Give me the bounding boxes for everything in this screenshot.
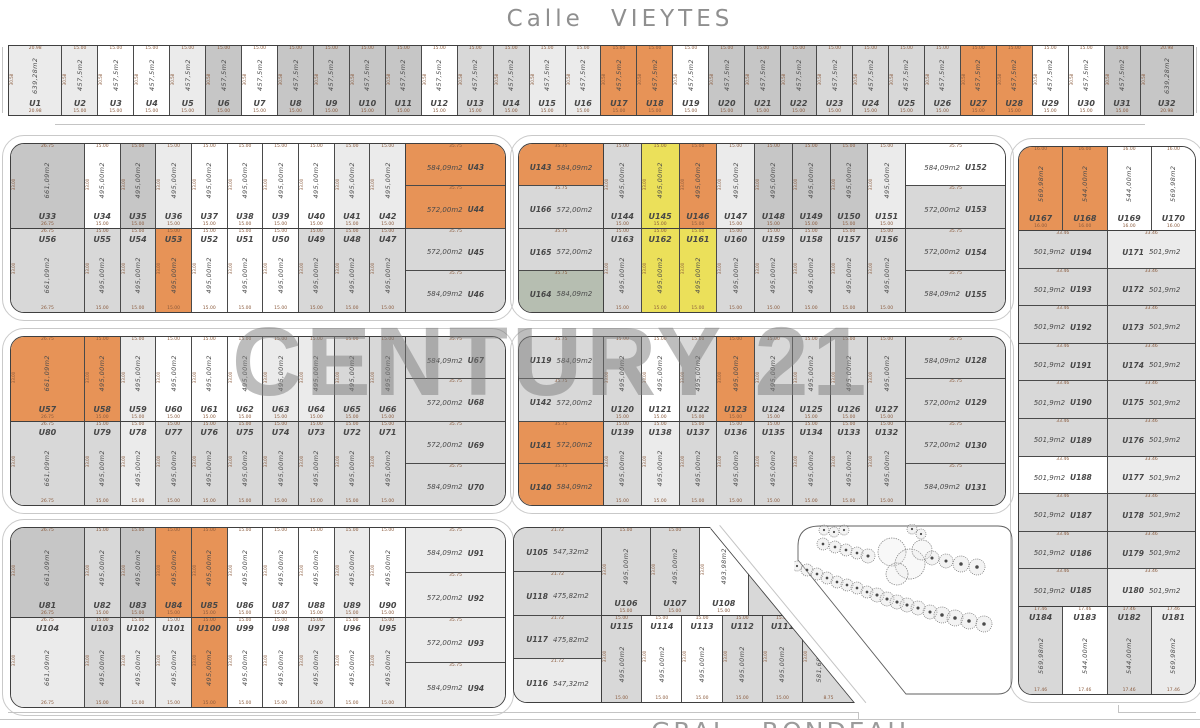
tree-icon [839, 525, 849, 535]
lot-dim-bottom: 16.00 [1123, 224, 1136, 230]
lot-area: 501,9m2 [1034, 248, 1065, 256]
lot-label: 572,00m2U92 [427, 579, 484, 617]
lot-U12: 15.00457,5m2U1215.0030.58 [421, 46, 457, 115]
lot-U179: 33.46U179501,9m2 [1107, 532, 1196, 569]
lot-dim-bottom: 15.00 [729, 222, 742, 228]
lot-id: U138 [649, 428, 672, 438]
lot-area: 572,00m2 [556, 441, 592, 449]
lot-area: 495,00m2 [241, 245, 249, 307]
lot-area: 639,28m2 [31, 52, 39, 99]
lot-id: U79 [93, 428, 111, 438]
lot-band-bottom: 15.00U139495,00m215.0033.0015.00U138495,… [604, 422, 905, 506]
lot-U175: 33.46U175501,9m2 [1107, 381, 1196, 418]
lot-side-dim: 33.00 [85, 178, 90, 189]
lot-dim-bottom: 15.00 [96, 701, 109, 707]
lot-dim-bottom: 15.00 [616, 222, 629, 228]
subdivision-plan: Calle VIEYTES CENTURY 21 GRAL. RONDEAU 2… [0, 0, 1200, 728]
lot-id: U118 [526, 592, 548, 601]
lot-dim-bottom: 15.00 [346, 611, 359, 617]
lot-side-dim: 33.00 [371, 178, 376, 189]
lot-area: 495,00m2 [98, 534, 106, 601]
lot-id: U93 [468, 639, 485, 648]
lot-side-dim: 30.58 [99, 74, 104, 85]
lot-area: 584,09m2 [556, 483, 592, 491]
lot-area: 495,00m2 [170, 245, 178, 307]
city-block-east: 16.00569,98m2U16716.0016.00544,00m2U1681… [1018, 146, 1196, 695]
lot-id: U134 [800, 428, 823, 438]
lot-id: U12 [430, 99, 448, 109]
lot-U5: 15.00457,5m2U515.0030.58 [169, 46, 205, 115]
lot-id: U104 [36, 624, 59, 634]
lot-id: U174 [1122, 361, 1144, 370]
lot-U30: 15.00457,5m2U3015.0030.58 [1068, 46, 1104, 115]
lot-id: U9 [325, 99, 337, 109]
lot-U149: 15.00495,00m2U14915.0033.00 [792, 144, 830, 228]
lot-side-dim: 33.00 [755, 178, 760, 189]
lot-area: 495,00m2 [98, 634, 106, 701]
lot-dim-bottom: 15.00 [381, 611, 394, 617]
lot-area: 495,00m2 [738, 632, 746, 697]
lot-row: 33.46501,9m2U18833.46U177501,9m2 [1019, 456, 1195, 494]
lot-area: 495,00m2 [134, 150, 142, 212]
lot-U22: 15.00457,5m2U2215.0030.58 [780, 46, 816, 115]
tree-icon [947, 610, 963, 626]
lot-id: U105 [526, 548, 548, 557]
lot-U116: 21.72U116547,32m2 [514, 658, 601, 702]
lot-label: U172501,9m2 [1122, 275, 1180, 306]
lot-stack-right: 35.75584,09m2U9135.75572,00m2U9235.75572… [405, 528, 505, 707]
lot-area: 495,00m2 [769, 245, 777, 307]
lot-U132: 15.00U132495,00m215.0033.00 [867, 422, 905, 506]
lot-U18: 15.00457,5m2U1815.0030.58 [636, 46, 672, 115]
lot-U72: 15.00U72495,00m215.0033.00 [334, 422, 370, 506]
lot-area: 495,00m2 [384, 534, 392, 601]
lot-side-dim: 33.00 [604, 263, 609, 274]
lot-area: 495,00m2 [384, 150, 392, 212]
lot-dim-bottom: 15.00 [346, 222, 359, 228]
lot-U9: 15.00457,5m2U915.0030.58 [313, 46, 349, 115]
lot-U27: 15.00457,5m2U2715.0030.58 [960, 46, 996, 115]
lot-id: U96 [343, 624, 361, 634]
lot-area: 457,5m2 [687, 52, 695, 99]
lot-side-dim: 33.00 [11, 565, 16, 576]
lot-id: U194 [1070, 248, 1092, 257]
lot-U129: 35.75572,00m2U129 [906, 378, 1005, 420]
lot-area: 584,09m2 [427, 549, 463, 557]
lot-id: U165 [530, 248, 552, 257]
lot-area: 495,00m2 [883, 343, 891, 405]
lot-id: U192 [1070, 323, 1092, 332]
lot-id: U128 [965, 356, 987, 365]
lot-id: U11 [394, 99, 412, 109]
lot-U153: 35.75572,00m2U153 [906, 185, 1005, 227]
lot-U185: 33.46501,9m2U185 [1019, 569, 1107, 606]
lot-side-dim: 33.00 [371, 655, 376, 666]
lot-label: 584,09m2U131 [924, 470, 987, 505]
lot-area: 572,00m2 [924, 399, 960, 407]
lot-side-dim: 33.00 [228, 565, 233, 576]
lot-U48: 15.00U48495,00m215.0033.00 [334, 229, 370, 313]
lot-side-dim: 30.58 [925, 74, 930, 85]
lot-id: U80 [39, 428, 57, 438]
lot-id: U117 [526, 635, 548, 644]
lot-area: 457,5m2 [1082, 52, 1090, 99]
lot-area: 457,5m2 [759, 52, 767, 99]
lot-U108: 15.00493,98m2U10815.0033.00 [699, 528, 748, 615]
lot-area: 547,32m2 [553, 548, 589, 556]
lot-id: U48 [343, 235, 361, 245]
lot-U171: 33.46U171501,9m2 [1107, 231, 1196, 268]
lot-U32: 20.98639,28m2U3220.9830.58 [1140, 46, 1193, 115]
lot-id: U150 [837, 212, 860, 222]
century21-watermark: CENTURY 21 [232, 306, 870, 418]
lot-id: U56 [39, 235, 57, 245]
lot-id: U116 [526, 679, 548, 688]
lot-side-dim: 33.00 [793, 178, 798, 189]
lot-id: U189 [1070, 436, 1092, 445]
lot-area: 495,00m2 [241, 438, 249, 500]
lot-id: U51 [236, 235, 254, 245]
lot-area: 584,09m2 [427, 483, 463, 491]
lot-id: U97 [307, 624, 325, 634]
lot-dim-bottom: 15.00 [131, 306, 144, 312]
lot-dim-bottom: 15.00 [203, 415, 216, 421]
lot-dim-bottom: 15.00 [805, 499, 818, 505]
lot-area: 495,00m2 [384, 438, 392, 500]
lot-side-dim: 33.00 [335, 655, 340, 666]
lot-area: 495,00m2 [807, 245, 815, 307]
lot-side-dim: 33.00 [85, 565, 90, 576]
lot-side-dim: 33.00 [192, 456, 197, 467]
lot-side-dim: 33.00 [642, 263, 647, 274]
lot-id: U101 [162, 624, 185, 634]
lot-area: 495,00m2 [277, 534, 285, 601]
lot-side-dim: 33.00 [11, 263, 16, 274]
lot-U21: 15.00457,5m2U2115.0030.58 [744, 46, 780, 115]
lot-stack-right: 35.75584,09m2U4335.75572,00m2U4435.75572… [405, 144, 505, 312]
lot-area: 661,09m2 [43, 150, 51, 212]
lot-side-dim: 30.58 [817, 74, 822, 85]
lot-area: 495,00m2 [312, 150, 320, 212]
lot-dim-bottom: 15.00 [729, 499, 742, 505]
lot-label: U178501,9m2 [1122, 500, 1180, 531]
lot-side-dim: 33.00 [793, 456, 798, 467]
tree-icon [794, 561, 802, 571]
lot-side-dim: 33.00 [335, 565, 340, 576]
lot-id: U175 [1122, 398, 1144, 407]
lot-area: 584,09m2 [556, 290, 592, 298]
lot-side-dim: 30.58 [458, 74, 463, 85]
lot-side-dim: 33.00 [868, 263, 873, 274]
street-line [8, 712, 858, 713]
lot-area: 501,9m2 [1034, 549, 1065, 557]
lot-dim-bottom: 26.75 [41, 611, 54, 617]
lot-area: 495,00m2 [656, 150, 664, 212]
lot-id: U99 [236, 624, 254, 634]
lot-U136: 15.00U136495,00m215.0033.00 [716, 422, 754, 506]
lot-label: 572,00m2U129 [924, 385, 987, 420]
lot-id: U184 [1029, 613, 1052, 623]
lot-label: 501,9m2U188 [1034, 463, 1092, 494]
lot-side-dim: 33.00 [717, 263, 722, 274]
lot-side-dim: 33.00 [371, 565, 376, 576]
lot-dim-bottom: 15.00 [73, 109, 86, 115]
lot-id: U87 [272, 601, 290, 611]
lot-area: 495,00m2 [883, 438, 891, 500]
lot-area: 457,5m2 [974, 52, 982, 99]
lot-U166: 35.75U166572,00m2 [519, 185, 603, 227]
lot-id: U164 [530, 290, 552, 299]
lot-U157: 15.00U157495,00m215.0033.00 [830, 229, 868, 313]
lot-area: 495,00m2 [277, 245, 285, 307]
lot-area: 495,00m2 [694, 438, 702, 500]
lot-id: U135 [762, 428, 785, 438]
lot-area: 495,00m2 [205, 245, 213, 307]
lot-id: U90 [379, 601, 397, 611]
lot-area: 495,00m2 [170, 634, 178, 701]
lot-area: 501,9m2 [1149, 587, 1180, 595]
street-line [1196, 47, 1197, 113]
lot-area: 495,00m2 [769, 438, 777, 500]
lot-U100: 15.00U100495,00m215.0033.00 [191, 618, 227, 707]
lot-area: 501,9m2 [1149, 436, 1180, 444]
lot-area: 544,00m2 [1081, 623, 1089, 688]
lot-rows: 26.75661,09m2U3326.7533.0015.00495,00m2U… [11, 144, 405, 312]
lot-side-dim: 33.00 [192, 263, 197, 274]
lot-U155: 35.75584,09m2U155 [906, 270, 1005, 312]
lot-side-dim: 33.00 [156, 456, 161, 467]
lot-dim-bottom: 15.00 [253, 109, 266, 115]
lot-area: 495,00m2 [134, 534, 142, 601]
lot-dim-bottom: 16.00 [1034, 224, 1047, 230]
lot-band-top: 26.75661,09m2U8126.7533.0015.00495,00m2U… [11, 528, 405, 618]
lot-id: U92 [468, 594, 485, 603]
lot-row: 33.46501,9m2U19033.46U175501,9m2 [1019, 380, 1195, 418]
lot-U187: 33.46501,9m2U187 [1019, 494, 1107, 531]
lot-dim-bottom: 15.00 [96, 306, 109, 312]
lot-U97: 15.00U97495,00m215.0033.00 [298, 618, 334, 707]
lot-side-dim: 30.58 [961, 74, 966, 85]
lot-label: 501,9m2U189 [1034, 425, 1092, 456]
lot-side-dim: 33.00 [121, 178, 126, 189]
lot-id: U69 [468, 441, 485, 450]
lot-id: U8 [289, 99, 301, 109]
lot-dim-bottom: 15.00 [274, 701, 287, 707]
lot-U183: 17.46U183544,00m217.46 [1062, 607, 1106, 694]
lot-side-dim: 33.00 [717, 178, 722, 189]
lot-area: 572,00m2 [924, 206, 960, 214]
lot-side-dim: 33.00 [192, 178, 197, 189]
lot-U104: 26.75U104661,09m226.7533.00 [11, 618, 84, 707]
lot-id: U159 [762, 235, 785, 245]
lot-id: U40 [307, 212, 325, 222]
lot-area: 457,5m2 [1118, 52, 1126, 99]
lot-dim-bottom: 15.00 [238, 222, 251, 228]
lot-id: U73 [307, 428, 325, 438]
lot-U191: 33.46501,9m2U191 [1019, 344, 1107, 381]
street-line [1118, 712, 1196, 713]
lot-area: 572,00m2 [556, 248, 592, 256]
lot-dim-bottom: 15.00 [469, 109, 482, 115]
lot-id: U114 [650, 622, 673, 632]
lot-U8: 15.00457,5m2U815.0030.58 [277, 46, 313, 115]
lot-side-dim: 33.00 [156, 371, 161, 382]
lot-U39: 15.00495,00m2U3915.0033.00 [262, 144, 298, 228]
lot-id: U47 [379, 235, 397, 245]
lot-dim-bottom: 15.00 [203, 701, 216, 707]
lot-U102: 15.00U102495,00m215.0033.00 [120, 618, 156, 707]
lot-area: 501,9m2 [1149, 474, 1180, 482]
tree-icon [939, 554, 953, 568]
lot-U192: 33.46501,9m2U192 [1019, 306, 1107, 343]
lot-area: 572,00m2 [924, 441, 960, 449]
lot-dim-bottom: 15.00 [325, 109, 338, 115]
lot-U181: 17.46U181569,98m217.46 [1151, 607, 1195, 694]
lot-area: 495,00m2 [658, 632, 666, 697]
lot-side-dim: 33.00 [683, 651, 688, 662]
lot-id: U158 [800, 235, 823, 245]
lot-dim-bottom: 15.00 [96, 499, 109, 505]
lot-id: U37 [200, 212, 218, 222]
lot-area: 547,32m2 [553, 680, 589, 688]
lot-row: 33.46501,9m2U19233.46U173501,9m2 [1019, 305, 1195, 343]
lot-id: U139 [611, 428, 634, 438]
lot-dim-bottom: 15.00 [767, 499, 780, 505]
lot-U173: 33.46U173501,9m2 [1107, 306, 1196, 343]
lot-U88: 15.00495,00m2U8815.0033.00 [298, 528, 334, 617]
lot-stack-right: 35.75584,09m2U12835.75572,00m2U12935.755… [905, 337, 1005, 505]
lot-label: 501,9m2U192 [1034, 312, 1092, 343]
lot-U34: 15.00495,00m2U3415.0033.00 [84, 144, 120, 228]
street-line [55, 124, 1145, 125]
lot-dim-bottom: 15.00 [131, 222, 144, 228]
lot-side-dim: 30.58 [674, 74, 679, 85]
lot-dim-bottom: 15.00 [776, 696, 789, 702]
lot-side-dim: 33.00 [299, 655, 304, 666]
lot-row: 33.46501,9m2U19433.46U171501,9m2 [1019, 231, 1195, 268]
lot-id: U106 [614, 599, 637, 609]
lot-dim-bottom: 15.00 [167, 701, 180, 707]
lot-U162: 15.00U162495,00m215.0033.00 [641, 229, 679, 313]
lot-id: U14 [502, 99, 520, 109]
lot-U23: 15.00457,5m2U2315.0030.58 [816, 46, 852, 115]
lot-U37: 15.00495,00m2U3715.0033.00 [191, 144, 227, 228]
lot-U86: 15.00495,00m2U8615.0033.00 [227, 528, 263, 617]
lot-area: 544,00m2 [1125, 623, 1133, 688]
lot-id: U4 [146, 99, 158, 109]
lot-U84: 15.00495,00m2U8415.0033.00 [155, 528, 191, 617]
lot-id: U131 [965, 483, 987, 492]
lot-id: U94 [468, 684, 485, 693]
lot-label: 584,09m2U128 [924, 343, 987, 378]
lot-side-dim: 33.00 [602, 564, 607, 575]
lot-dim-bottom: 15.00 [167, 611, 180, 617]
lot-side-dim: 33.00 [299, 178, 304, 189]
lot-area: 544,00m2 [1081, 153, 1089, 214]
tree-icon [861, 549, 875, 563]
lot-id: U54 [129, 235, 147, 245]
lot-id: U172 [1122, 285, 1144, 294]
lot-dim-bottom: 15.00 [203, 222, 216, 228]
lot-U92: 35.75572,00m2U92 [406, 572, 505, 617]
lot-side-dim: 33.00 [793, 263, 798, 274]
lot-U177: 33.46U177501,9m2 [1107, 457, 1196, 494]
lot-id: U55 [93, 235, 111, 245]
lot-side-dim: 33.00 [299, 565, 304, 576]
lot-band-top: 15.00495,00m2U14415.0033.0015.00495,00m2… [604, 144, 905, 229]
lot-dim-bottom: 15.00 [805, 222, 818, 228]
lot-U25: 15.00457,5m2U2515.0030.58 [888, 46, 924, 115]
lot-U169: 16.00544,00m2U16916.00 [1107, 147, 1151, 230]
lot-side-dim: 33.00 [11, 456, 16, 467]
lot-area: 475,82m2 [553, 636, 589, 644]
lot-dim-bottom: 15.00 [828, 109, 841, 115]
lot-label: 572,00m2U69 [427, 428, 484, 463]
lot-id: U146 [686, 212, 709, 222]
lot-label: 501,9m2U187 [1034, 500, 1092, 531]
lot-area: 495,00m2 [883, 245, 891, 307]
lot-side-dim: 30.58 [853, 74, 858, 85]
lot-dim-bottom: 15.00 [1080, 109, 1093, 115]
lot-area: 457,5m2 [112, 52, 120, 99]
lot-dim-bottom: 15.00 [1008, 109, 1021, 115]
lot-id: U181 [1162, 613, 1185, 623]
lot-U193: 33.46501,9m2U193 [1019, 269, 1107, 306]
lot-U172: 33.46U172501,9m2 [1107, 269, 1196, 306]
lot-label: U166572,00m2 [530, 192, 593, 227]
lot-U133: 15.00U133495,00m215.0033.00 [830, 422, 868, 506]
tree-icon [840, 544, 852, 556]
lot-U160: 15.00U160495,00m215.0033.00 [716, 229, 754, 313]
lot-side-dim: 33.00 [228, 178, 233, 189]
lot-id: U49 [307, 235, 325, 245]
lot-area: 495,00m2 [384, 245, 392, 307]
lot-label: 501,9m2U194 [1034, 237, 1092, 268]
lot-dim-bottom: 15.00 [691, 222, 704, 228]
lot-id: U91 [468, 549, 485, 558]
lot-area: 457,5m2 [543, 52, 551, 99]
lot-id: U24 [862, 99, 880, 109]
lot-side-dim: 33.00 [371, 456, 376, 467]
lot-side-dim: 33.00 [156, 178, 161, 189]
lot-side-dim: 33.00 [755, 456, 760, 467]
lot-id: U74 [272, 428, 290, 438]
lot-area: 495,00m2 [312, 245, 320, 307]
lot-dim-bottom: 15.00 [936, 109, 949, 115]
lot-U76: 15.00U76495,00m215.0033.00 [191, 422, 227, 506]
lot-id: U169 [1118, 214, 1141, 224]
lot-id: U143 [530, 163, 552, 172]
lot-area: 495,00m2 [348, 634, 356, 701]
lot-U43: 35.75584,09m2U43 [406, 144, 505, 185]
lot-area: 661,09m2 [43, 438, 51, 500]
lot-id: U191 [1070, 361, 1092, 370]
lot-label: 501,9m2U191 [1034, 350, 1092, 381]
lot-area: 495,00m2 [694, 245, 702, 307]
lot-dim-bottom: 15.00 [145, 109, 158, 115]
lot-area: 495,00m2 [134, 438, 142, 500]
lot-side-dim: 33.00 [192, 565, 197, 576]
lot-dim-bottom: 20.98 [1160, 109, 1173, 115]
lot-dim-bottom: 15.00 [620, 609, 633, 615]
lot-area: 457,5m2 [327, 52, 335, 99]
lot-id: U71 [379, 428, 397, 438]
lot-area: 495,00m2 [732, 438, 740, 500]
street-label-vieytes: Calle VIEYTES [400, 6, 840, 32]
lot-area: 661,09m2 [43, 534, 51, 601]
lot-area: 569,98m2 [1169, 623, 1177, 688]
lot-dim-bottom: 15.00 [541, 109, 554, 115]
